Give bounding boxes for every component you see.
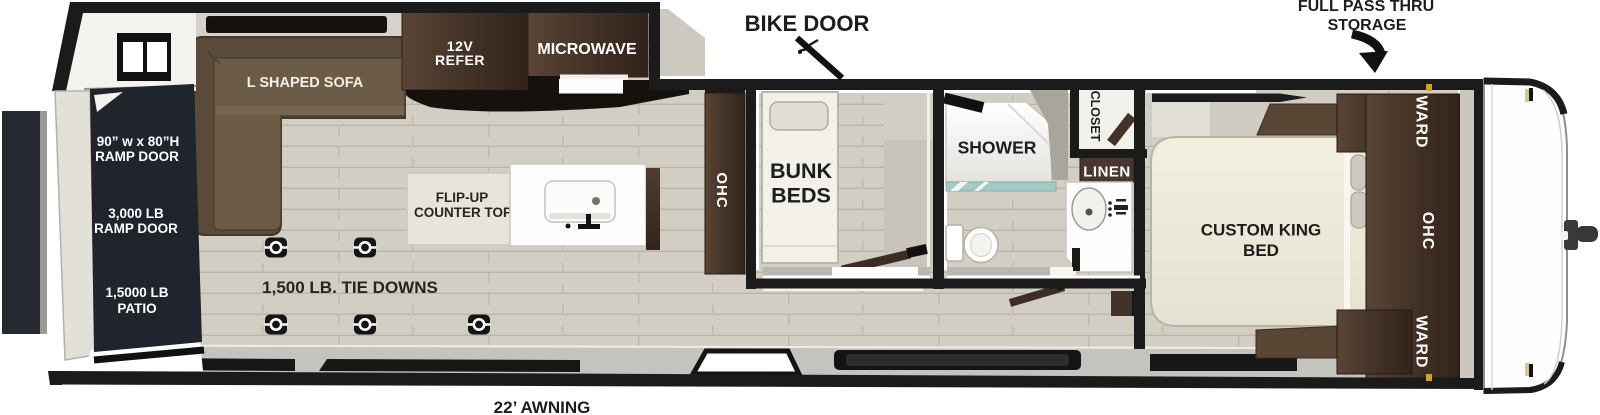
svg-text:BEDS: BEDS (771, 184, 831, 208)
svg-text:SHOWER: SHOWER (958, 138, 1037, 158)
svg-text:MICROWAVE: MICROWAVE (537, 41, 637, 58)
svg-text:OHC: OHC (1419, 212, 1436, 251)
svg-text:BED: BED (1243, 241, 1279, 260)
svg-text:RAMP DOOR: RAMP DOOR (95, 149, 179, 164)
svg-text:1,500 LB. TIE DOWNS: 1,500 LB. TIE DOWNS (262, 278, 438, 297)
svg-text:OHC: OHC (713, 172, 730, 208)
svg-text:REFER: REFER (435, 52, 485, 68)
svg-text:BIKE DOOR: BIKE DOOR (745, 11, 870, 36)
svg-text:90” w x 80”H: 90” w x 80”H (97, 134, 180, 149)
svg-text:CLOSET: CLOSET (1088, 91, 1102, 142)
svg-text:22’ AWNING: 22’ AWNING (494, 398, 591, 415)
svg-text:L SHAPED SOFA: L SHAPED SOFA (247, 75, 364, 91)
svg-text:WARD: WARD (1413, 316, 1430, 369)
svg-text:PATIO: PATIO (117, 301, 156, 316)
svg-text:FULL PASS THRU: FULL PASS THRU (1298, 0, 1434, 15)
svg-text:3,000 LB: 3,000 LB (108, 206, 164, 221)
svg-text:WARD: WARD (1413, 96, 1430, 149)
svg-text:STORAGE: STORAGE (1328, 17, 1407, 34)
svg-text:CUSTOM KING: CUSTOM KING (1201, 221, 1322, 240)
svg-text:BUNK: BUNK (770, 159, 833, 183)
svg-text:FLIP-UP: FLIP-UP (436, 190, 489, 205)
svg-text:LINEN: LINEN (1083, 164, 1131, 181)
svg-text:1,5000 LB: 1,5000 LB (105, 285, 168, 300)
svg-text:COUNTER TOP: COUNTER TOP (414, 205, 512, 220)
svg-text:RAMP DOOR: RAMP DOOR (94, 221, 178, 236)
